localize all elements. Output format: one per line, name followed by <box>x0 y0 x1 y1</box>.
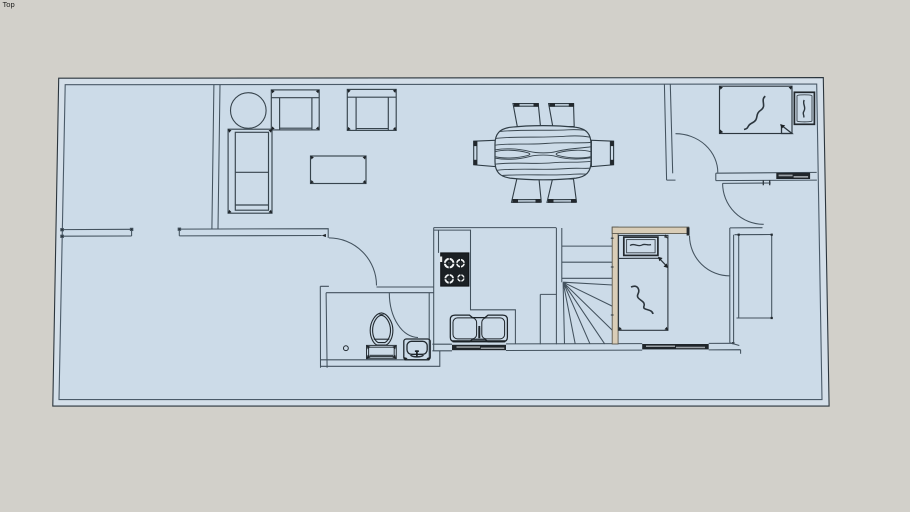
svg-text:Top: Top <box>3 0 15 9</box>
